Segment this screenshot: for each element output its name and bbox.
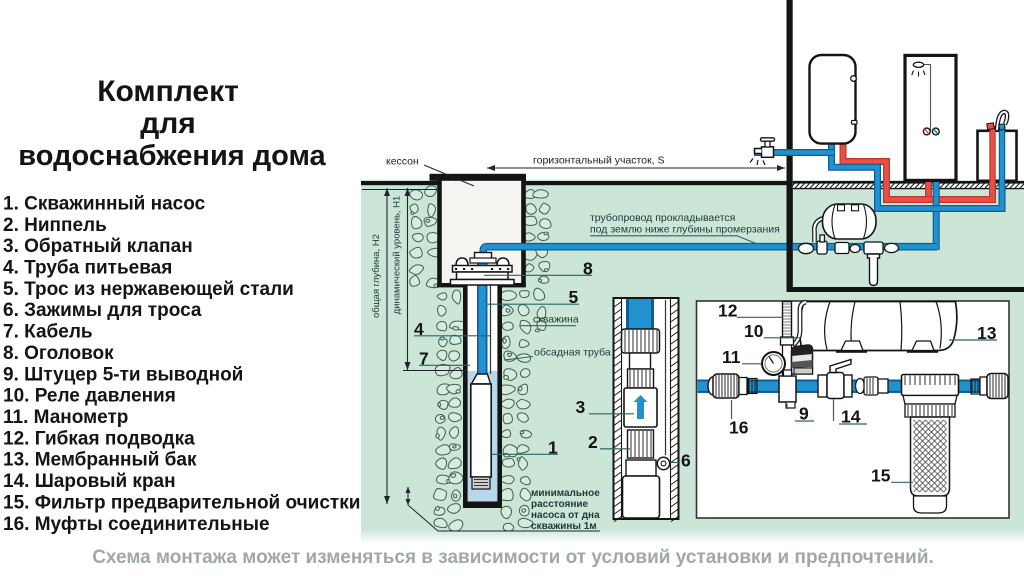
svg-text:под землю ниже глубины про: под землю ниже глубины промерзания — [590, 224, 780, 236]
svg-text:16: 16 — [729, 418, 749, 438]
svg-text:минимальное: минимальное — [531, 488, 600, 499]
svg-text:15. Фильтр предварительной очи: 15. Фильтр предварительной очистки — [3, 492, 360, 513]
svg-text:12: 12 — [718, 301, 738, 321]
svg-text:5. Трос из нержавеющей стали: 5. Трос из нержавеющей стали — [3, 279, 294, 300]
svg-text:динамический уровень, Н1: динамический уровень, Н1 — [392, 196, 403, 315]
svg-text:7. Кабель: 7. Кабель — [3, 322, 93, 343]
svg-text:трубопровод прокладывается: трубопровод прокладывается — [590, 212, 735, 224]
svg-text:14. Шаровый кран: 14. Шаровый кран — [3, 471, 176, 492]
svg-text:3: 3 — [576, 397, 586, 417]
svg-text:водоснабжения дома: водоснабжения дома — [18, 140, 326, 172]
svg-text:1. Скважинный насос: 1. Скважинный насос — [3, 194, 206, 215]
svg-text:6. Зажимы для троса: 6. Зажимы для троса — [3, 300, 202, 321]
svg-text:4. Труба питьевая: 4. Труба питьевая — [3, 258, 172, 279]
svg-text:скважины 1м: скважины 1м — [531, 521, 597, 532]
svg-text:3. Обратный клапан: 3. Обратный клапан — [3, 236, 193, 257]
svg-text:15: 15 — [871, 466, 891, 486]
svg-text:16. Муфты соединительные: 16. Муфты соединительные — [3, 514, 270, 535]
svg-text:2. Ниппель: 2. Ниппель — [3, 215, 107, 236]
svg-text:скважина: скважина — [533, 314, 579, 326]
svg-text:кессон: кессон — [386, 156, 419, 168]
svg-text:для: для — [140, 107, 196, 140]
svg-text:10. Реле давления: 10. Реле давления — [3, 386, 176, 407]
svg-text:общая глубина, Н2: общая глубина, Н2 — [371, 234, 382, 318]
svg-text:расстояние: расстояние — [531, 499, 589, 510]
svg-text:6: 6 — [681, 451, 691, 471]
svg-text:Комплект: Комплект — [97, 75, 239, 108]
svg-text:обсадная труба: обсадная труба — [534, 347, 611, 359]
svg-text:11: 11 — [722, 347, 741, 367]
svg-text:9. Штуцер 5-ти выводной: 9. Штуцер 5-ти выводной — [3, 364, 243, 385]
svg-text:8. Оголовок: 8. Оголовок — [3, 343, 114, 364]
svg-text:2: 2 — [588, 432, 598, 452]
svg-text:насоса от дна: насоса от дна — [531, 510, 600, 521]
svg-text:11. Манометр: 11. Манометр — [3, 407, 128, 428]
svg-text:Схема монтажа может изменяться: Схема монтажа может изменяться в зависим… — [92, 547, 934, 568]
svg-text:13. Мембранный бак: 13. Мембранный бак — [3, 450, 197, 471]
svg-text:10: 10 — [744, 321, 764, 341]
svg-text:12. Гибкая подводка: 12. Гибкая подводка — [3, 428, 195, 449]
svg-text:горизонтальный участок, S: горизонтальный участок, S — [533, 155, 665, 167]
